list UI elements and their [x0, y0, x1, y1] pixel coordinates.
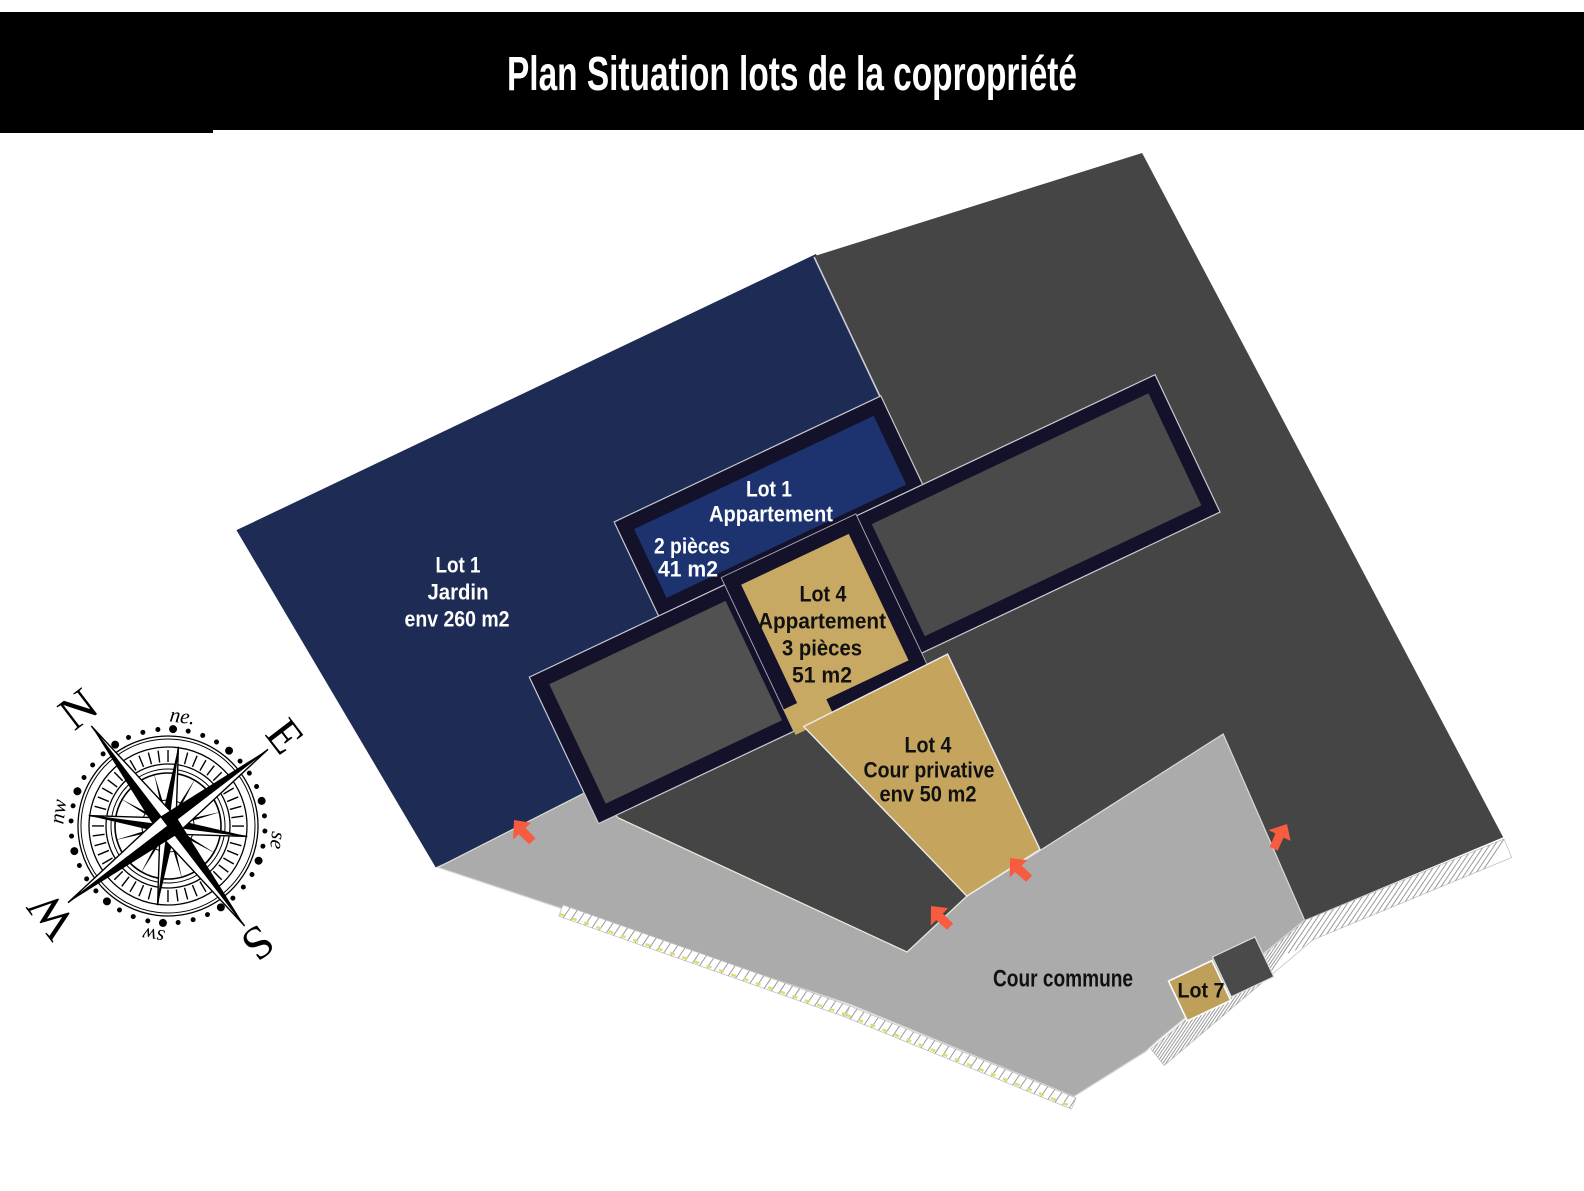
svg-text:Plan Situation lots de la copr: Plan Situation lots de la copropriété [507, 48, 1077, 101]
svg-text:Appartement: Appartement [758, 609, 887, 634]
svg-text:E: E [255, 709, 314, 763]
svg-text:se: se [265, 830, 291, 850]
svg-text:Appartement: Appartement [709, 502, 834, 527]
svg-text:Cour commune: Cour commune [993, 966, 1133, 993]
svg-text:ne.: ne. [169, 702, 197, 729]
svg-text:N: N [49, 678, 108, 740]
svg-text:Lot 1: Lot 1 [436, 553, 481, 578]
svg-text:2 pièces: 2 pièces [654, 534, 730, 559]
svg-text:Lot 4: Lot 4 [800, 582, 848, 607]
svg-text:3 pièces: 3 pièces [782, 636, 862, 661]
svg-text:S: S [231, 914, 283, 971]
svg-text:51 m2: 51 m2 [792, 663, 852, 688]
svg-text:Lot 1: Lot 1 [746, 477, 792, 502]
svg-text:Cour privative: Cour privative [864, 758, 995, 783]
svg-text:41 m2: 41 m2 [658, 557, 718, 582]
svg-text:Lot 7: Lot 7 [1178, 980, 1225, 1003]
svg-text:nw: nw [44, 798, 71, 825]
svg-text:W: W [17, 882, 86, 949]
svg-text:env 260 m2: env 260 m2 [405, 607, 510, 632]
svg-text:env 50 m2: env 50 m2 [880, 782, 977, 807]
svg-text:Lot 4: Lot 4 [905, 733, 953, 758]
svg-text:Jardin: Jardin [428, 580, 489, 605]
svg-text:sw: sw [141, 923, 166, 950]
